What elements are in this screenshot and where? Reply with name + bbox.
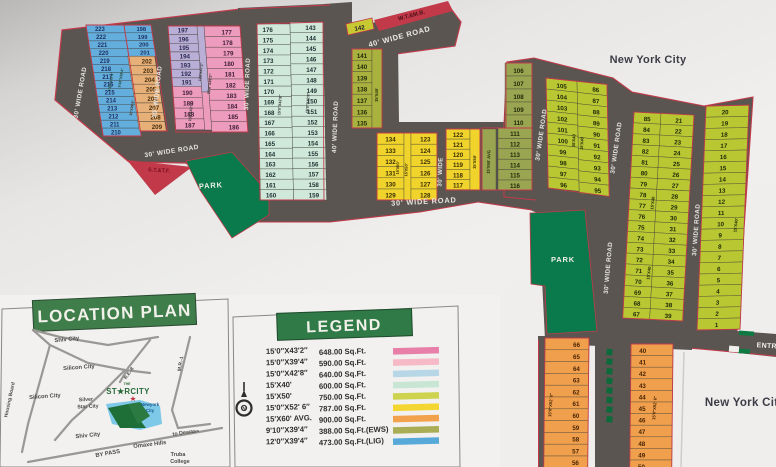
svg-text:42: 42 (639, 371, 646, 378)
svg-text:72: 72 (636, 257, 644, 264)
svg-text:222: 222 (96, 35, 107, 41)
svg-text:203: 203 (143, 68, 154, 75)
svg-text:Star City: Star City (77, 403, 99, 410)
svg-text:180: 180 (224, 61, 235, 68)
svg-text:103: 103 (557, 105, 568, 113)
svg-text:87: 87 (592, 98, 600, 106)
svg-text:185: 185 (228, 114, 239, 121)
svg-text:219: 219 (100, 59, 111, 65)
svg-text:25: 25 (673, 161, 681, 168)
svg-text:80: 80 (641, 170, 649, 177)
svg-text:56: 56 (572, 460, 579, 467)
svg-text:18: 18 (721, 132, 729, 139)
svg-text:93: 93 (594, 165, 602, 173)
svg-text:172: 172 (263, 69, 274, 76)
svg-text:108: 108 (513, 94, 524, 101)
svg-text:199: 199 (138, 35, 148, 41)
svg-text:Silver: Silver (79, 397, 93, 404)
svg-text:184: 184 (227, 104, 238, 111)
svg-text:67: 67 (633, 311, 641, 318)
svg-text:119: 119 (453, 162, 464, 169)
svg-text:640.00 Sq.Ft.: 640.00 Sq.Ft. (319, 369, 366, 380)
svg-text:86: 86 (592, 87, 600, 95)
svg-text:30' WIDE: 30' WIDE (436, 157, 444, 187)
svg-text:159: 159 (309, 193, 320, 200)
svg-text:105: 105 (556, 83, 567, 91)
svg-text:194: 194 (180, 54, 191, 61)
svg-text:175: 175 (263, 37, 274, 44)
svg-text:PARK: PARK (551, 255, 575, 264)
svg-text:162: 162 (265, 172, 276, 179)
svg-text:173: 173 (263, 58, 274, 65)
svg-text:174: 174 (263, 48, 274, 55)
svg-text:THE: THE (124, 382, 132, 386)
svg-text:154: 154 (308, 140, 319, 147)
svg-text:171: 171 (264, 79, 275, 86)
svg-text:48: 48 (638, 441, 645, 448)
svg-text:196: 196 (178, 36, 189, 43)
svg-text:168: 168 (264, 110, 275, 117)
svg-text:190: 190 (182, 90, 193, 97)
svg-text:15'0″X43'2″: 15'0″X43'2″ (266, 346, 308, 356)
svg-text:158: 158 (309, 182, 320, 189)
svg-text:123: 123 (420, 137, 431, 144)
svg-text:187: 187 (185, 122, 196, 129)
svg-text:163: 163 (265, 162, 276, 169)
svg-text:15'X40: 15'X40 (579, 136, 585, 151)
svg-text:124: 124 (420, 148, 431, 155)
svg-text:12'0″X39'4″: 12'0″X39'4″ (266, 436, 308, 446)
svg-text:135: 135 (357, 121, 368, 128)
svg-text:15'X40': 15'X40' (266, 380, 292, 390)
svg-text:61: 61 (573, 401, 580, 408)
svg-text:648.00 Sq.Ft.: 648.00 Sq.Ft. (319, 346, 366, 357)
svg-text:147: 147 (306, 67, 317, 74)
svg-text:200: 200 (139, 43, 149, 49)
svg-text:81: 81 (641, 159, 649, 166)
svg-text:152: 152 (307, 119, 318, 126)
svg-text:34: 34 (667, 259, 675, 266)
svg-text:109: 109 (513, 107, 524, 114)
svg-text:38: 38 (665, 302, 673, 309)
svg-text:37: 37 (666, 291, 674, 298)
svg-text:214: 214 (106, 99, 117, 105)
svg-text:198: 198 (136, 27, 146, 33)
svg-text:36: 36 (666, 280, 674, 287)
svg-text:156: 156 (308, 161, 319, 168)
svg-text:59: 59 (572, 425, 579, 432)
svg-text:201: 201 (140, 51, 150, 57)
svg-text:College: College (170, 459, 189, 465)
svg-text:221: 221 (97, 43, 108, 49)
svg-text:113: 113 (510, 152, 521, 159)
svg-text:City: City (146, 408, 155, 413)
svg-text:40: 40 (639, 348, 646, 355)
svg-text:183: 183 (226, 93, 237, 100)
svg-text:179: 179 (223, 51, 234, 58)
svg-text:97: 97 (560, 171, 568, 179)
svg-text:70: 70 (635, 279, 643, 286)
svg-text:141: 141 (357, 53, 368, 60)
svg-text:139: 139 (357, 75, 368, 82)
svg-text:210: 210 (111, 130, 122, 136)
svg-text:111: 111 (510, 131, 520, 138)
svg-text:134: 134 (385, 137, 396, 144)
svg-text:21: 21 (675, 118, 683, 125)
svg-text:23: 23 (674, 139, 682, 146)
svg-text:31: 31 (669, 226, 677, 233)
svg-text:47: 47 (638, 429, 645, 436)
svg-text:176: 176 (263, 27, 274, 34)
svg-text:82: 82 (642, 149, 650, 156)
svg-text:90: 90 (593, 131, 601, 139)
svg-text:153: 153 (308, 130, 319, 137)
svg-text:114: 114 (510, 162, 521, 169)
svg-text:15'X50': 15'X50' (472, 155, 477, 169)
svg-text:LEGEND: LEGEND (306, 317, 382, 337)
svg-text:145: 145 (306, 46, 317, 53)
svg-text:PARK: PARK (199, 180, 223, 191)
svg-text:204: 204 (145, 77, 156, 84)
svg-text:9'10″X39'4″: 9'10″X39'4″ (266, 425, 308, 435)
svg-text:10: 10 (717, 221, 725, 228)
svg-text:137: 137 (357, 98, 368, 105)
svg-text:66: 66 (573, 342, 580, 349)
svg-text:15'X60' AVG.: 15'X60' AVG. (266, 413, 312, 424)
svg-text:63: 63 (573, 378, 580, 385)
svg-text:165: 165 (265, 141, 276, 148)
svg-text:76: 76 (638, 214, 646, 221)
svg-text:83: 83 (642, 138, 650, 145)
svg-text:57: 57 (572, 448, 579, 455)
svg-text:79: 79 (640, 181, 648, 188)
svg-text:112: 112 (510, 142, 521, 149)
svg-text:78: 78 (639, 192, 647, 199)
svg-text:101: 101 (557, 127, 568, 135)
svg-text:178: 178 (222, 40, 233, 47)
svg-text:100: 100 (558, 138, 569, 146)
svg-text:138: 138 (357, 87, 368, 94)
svg-text:65: 65 (573, 354, 580, 361)
svg-text:77: 77 (639, 203, 647, 210)
svg-text:155: 155 (308, 151, 319, 158)
svg-text:45: 45 (639, 406, 646, 413)
svg-text:110: 110 (514, 120, 525, 127)
svg-text:787.00 Sq.Ft.: 787.00 Sq.Ft. (319, 403, 366, 414)
svg-text:116: 116 (510, 183, 521, 190)
svg-text:19: 19 (721, 120, 729, 127)
svg-text:900.00 Sq.Ft.: 900.00 Sq.Ft. (319, 414, 366, 425)
svg-text:600.00 Sq.Ft.: 600.00 Sq.Ft. (319, 380, 366, 391)
svg-text:60: 60 (572, 413, 579, 420)
svg-text:133: 133 (385, 148, 396, 155)
svg-text:169: 169 (264, 100, 275, 107)
svg-text:118: 118 (453, 172, 464, 179)
svg-text:182: 182 (226, 82, 237, 89)
svg-text:71: 71 (635, 268, 643, 275)
svg-text:212: 212 (108, 114, 119, 120)
svg-text:122: 122 (453, 132, 464, 139)
svg-text:15'X50': 15'X50' (395, 161, 400, 174)
svg-text:177: 177 (222, 29, 233, 36)
svg-text:148: 148 (306, 78, 317, 85)
svg-text:98: 98 (560, 160, 568, 168)
svg-text:223: 223 (95, 27, 106, 33)
svg-text:75: 75 (638, 225, 646, 232)
svg-text:16: 16 (720, 154, 728, 161)
svg-text:N: N (242, 407, 246, 413)
svg-text:30: 30 (670, 215, 678, 222)
svg-text:146: 146 (306, 57, 317, 64)
svg-text:166: 166 (265, 131, 276, 138)
svg-text:193: 193 (180, 62, 191, 69)
svg-text:15'0″X42'8″: 15'0″X42'8″ (266, 368, 308, 378)
svg-text:99: 99 (559, 149, 567, 157)
svg-text:170: 170 (264, 89, 275, 96)
svg-text:95: 95 (594, 187, 602, 195)
svg-text:15'X40': 15'X40' (374, 88, 379, 102)
svg-text:186: 186 (229, 125, 240, 132)
svg-text:121: 121 (453, 142, 464, 149)
svg-text:15'X60' AVG: 15'X60' AVG (486, 150, 492, 174)
svg-text:15'0″X52' 6″: 15'0″X52' 6″ (266, 402, 311, 413)
svg-text:167: 167 (264, 120, 275, 127)
svg-text:46: 46 (639, 418, 646, 425)
svg-text:ST★RCITY: ST★RCITY (106, 387, 150, 396)
svg-text:24: 24 (673, 150, 681, 157)
svg-text:14: 14 (719, 176, 727, 183)
svg-text:202: 202 (142, 59, 153, 66)
svg-text:15'0″X39'4″: 15'0″X39'4″ (266, 357, 308, 367)
svg-text:181: 181 (225, 72, 236, 79)
svg-text:127: 127 (420, 182, 431, 189)
svg-text:130: 130 (385, 182, 396, 189)
svg-text:69: 69 (634, 290, 642, 297)
svg-text:12: 12 (718, 199, 726, 206)
svg-text:89: 89 (593, 120, 601, 128)
svg-text:New York City: New York City (705, 397, 776, 409)
svg-text:144: 144 (306, 36, 317, 43)
svg-text:44: 44 (639, 394, 646, 401)
svg-text:117: 117 (453, 182, 464, 189)
svg-text:590.00 Sq.Ft.: 590.00 Sq.Ft. (319, 358, 366, 369)
svg-text:92: 92 (594, 154, 602, 162)
svg-text:94: 94 (594, 176, 602, 184)
svg-text:140: 140 (357, 64, 368, 71)
svg-text:11: 11 (718, 210, 725, 217)
svg-text:125: 125 (420, 159, 431, 166)
svg-text:35: 35 (667, 269, 675, 276)
svg-text:17: 17 (720, 143, 728, 150)
svg-text:88: 88 (593, 109, 601, 117)
svg-text:104: 104 (557, 94, 568, 102)
svg-text:58: 58 (572, 437, 579, 444)
svg-text:191: 191 (182, 80, 193, 87)
svg-text:211: 211 (110, 122, 120, 128)
svg-text:213: 213 (107, 107, 118, 113)
svg-text:85: 85 (643, 116, 651, 123)
svg-text:15'X50': 15'X50' (403, 163, 408, 176)
svg-text:197: 197 (178, 28, 189, 35)
svg-text:22: 22 (675, 128, 683, 135)
svg-text:41: 41 (639, 360, 646, 367)
svg-text:New York City: New York City (610, 54, 687, 66)
svg-text:74: 74 (637, 235, 645, 242)
svg-text:49: 49 (638, 452, 645, 459)
svg-text:126: 126 (420, 170, 431, 177)
svg-text:26: 26 (672, 172, 680, 179)
svg-text:15'X40: 15'X40 (571, 133, 577, 148)
svg-text:91: 91 (593, 143, 601, 151)
svg-text:43: 43 (639, 383, 646, 390)
svg-text:164: 164 (265, 151, 276, 158)
svg-text:39: 39 (664, 313, 672, 320)
svg-text:Newyork: Newyork (141, 402, 160, 407)
svg-text:33: 33 (668, 248, 676, 255)
svg-text:15: 15 (719, 165, 727, 172)
svg-text:115: 115 (510, 173, 521, 180)
svg-text:84: 84 (643, 127, 651, 134)
svg-text:Truba: Truba (171, 452, 187, 458)
svg-text:136: 136 (357, 109, 368, 116)
svg-text:15'X50': 15'X50' (266, 391, 292, 401)
svg-text:27: 27 (672, 183, 680, 190)
svg-text:160: 160 (266, 193, 277, 200)
svg-text:192: 192 (181, 71, 192, 78)
svg-text:28: 28 (671, 193, 679, 200)
svg-text:29: 29 (670, 204, 678, 211)
svg-text:107: 107 (513, 81, 524, 88)
svg-text:106: 106 (513, 68, 524, 75)
svg-text:143: 143 (305, 25, 316, 32)
svg-text:96: 96 (560, 182, 568, 190)
svg-text:32: 32 (669, 237, 677, 244)
svg-text:195: 195 (179, 45, 190, 52)
svg-text:13: 13 (718, 188, 726, 195)
svg-text:750.00 Sq.Ft.: 750.00 Sq.Ft. (319, 392, 366, 403)
svg-text:209: 209 (152, 124, 163, 131)
svg-text:161: 161 (266, 182, 277, 189)
svg-text:157: 157 (308, 172, 319, 179)
svg-text:68: 68 (633, 300, 641, 307)
svg-text:20: 20 (722, 109, 730, 116)
svg-text:64: 64 (573, 366, 580, 373)
svg-text:73: 73 (636, 246, 644, 253)
svg-text:102: 102 (557, 116, 568, 124)
svg-text:220: 220 (99, 51, 110, 57)
svg-text:120: 120 (453, 152, 464, 159)
svg-text:62: 62 (573, 389, 580, 396)
